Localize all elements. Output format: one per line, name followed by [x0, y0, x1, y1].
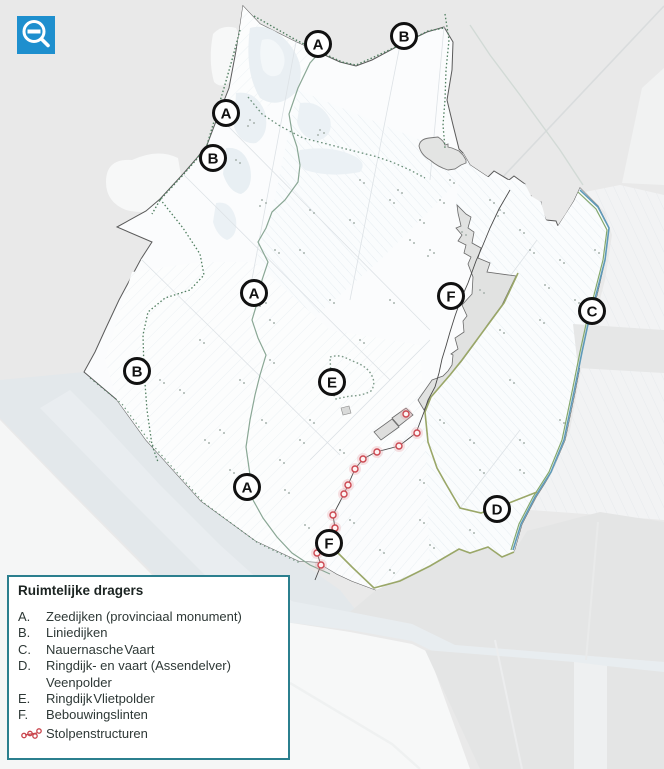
svg-text:B: B: [132, 364, 143, 381]
svg-text:F: F: [446, 289, 455, 306]
svg-text:F: F: [324, 536, 333, 553]
svg-text:B: B: [208, 151, 219, 168]
svg-text:C: C: [587, 304, 598, 321]
svg-text:A: A: [242, 480, 253, 497]
svg-text:E: E: [327, 375, 337, 392]
svg-text:A: A: [221, 106, 232, 123]
svg-text:D: D: [492, 502, 503, 519]
svg-text:A: A: [313, 37, 324, 54]
svg-text:A: A: [249, 286, 260, 303]
svg-text:B: B: [399, 29, 410, 46]
